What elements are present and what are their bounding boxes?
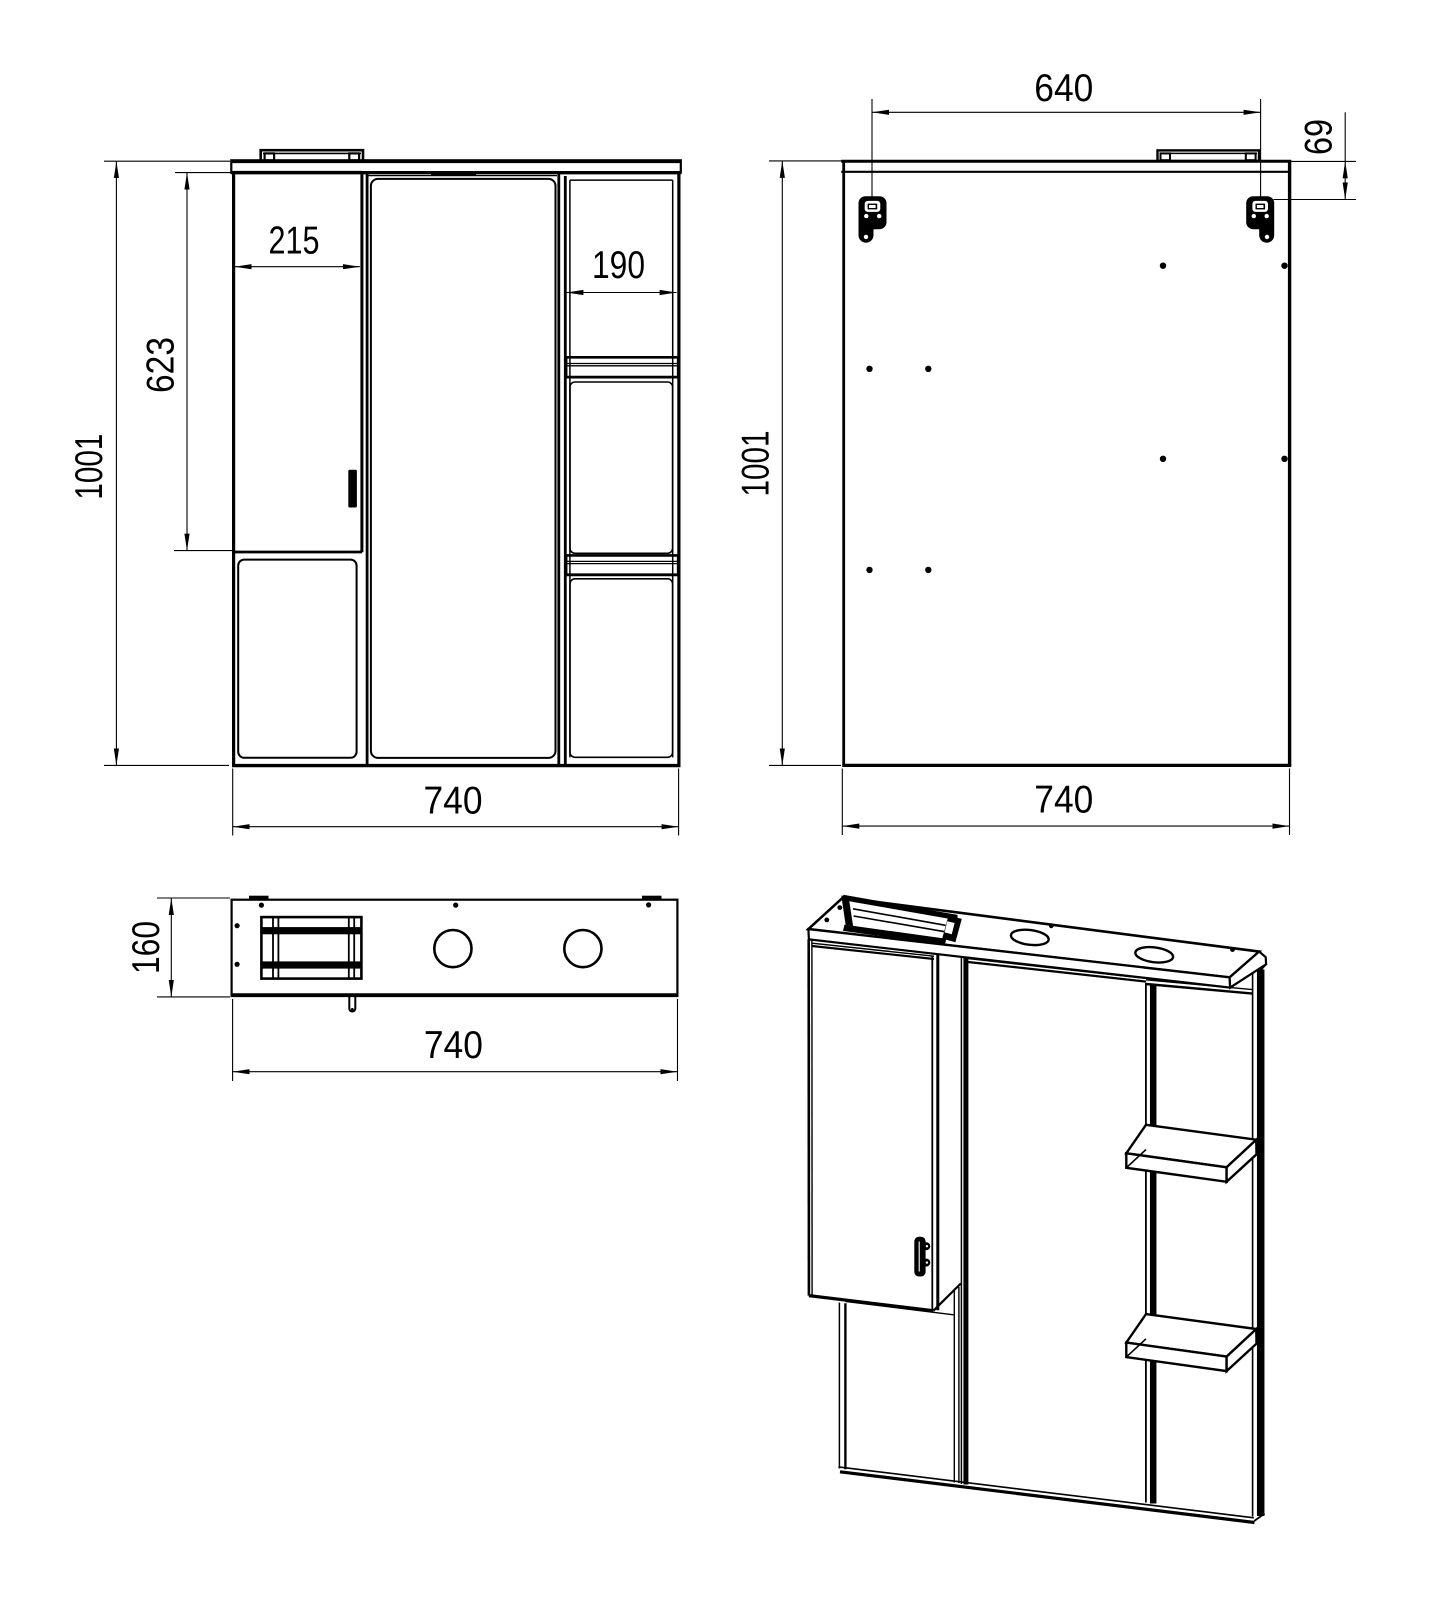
- svg-text:160: 160: [125, 921, 168, 974]
- svg-text:1001: 1001: [735, 431, 778, 497]
- svg-text:623: 623: [140, 337, 183, 393]
- svg-text:1001: 1001: [68, 434, 111, 500]
- svg-text:69: 69: [1298, 119, 1341, 155]
- svg-text:740: 740: [1034, 779, 1093, 822]
- svg-text:215: 215: [269, 219, 320, 262]
- svg-text:740: 740: [424, 780, 483, 823]
- svg-text:740: 740: [424, 1024, 483, 1067]
- svg-text:640: 640: [1034, 67, 1093, 110]
- svg-text:190: 190: [592, 244, 645, 287]
